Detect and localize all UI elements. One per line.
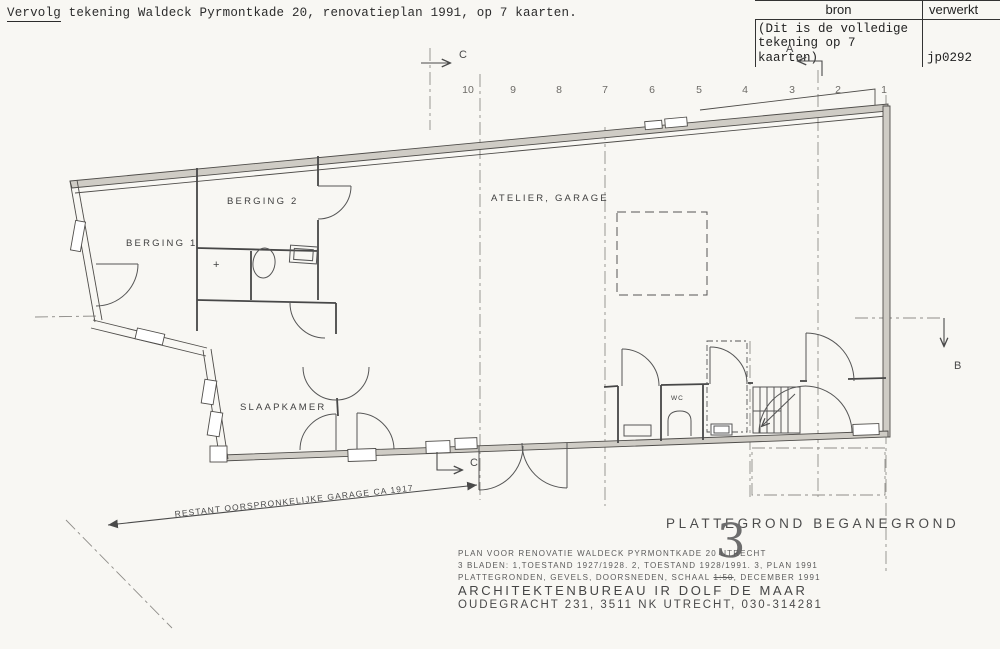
- sheet-title: PLATTEGROND BEGANEGROND: [666, 516, 959, 531]
- door-swing: [300, 414, 336, 450]
- window: [426, 441, 450, 454]
- door-swing: [805, 386, 852, 433]
- room-label-atelier: ATELIER, GARAGE: [491, 193, 609, 204]
- boundary-diagonal-line: [66, 520, 172, 628]
- door-swing: [806, 333, 854, 381]
- grid-label: 1: [881, 84, 887, 96]
- plus-mark: +: [213, 259, 219, 271]
- roof-edge-line: [700, 89, 875, 110]
- scanned-drawing-page: Vervolg tekening Waldeck Pyrmontkade 20,…: [0, 0, 1000, 649]
- staircase: [753, 387, 800, 433]
- room-label-berging2: BERGING 2: [227, 196, 299, 207]
- grid-label: 8: [556, 84, 562, 96]
- section-a-label: A: [786, 43, 794, 55]
- wall-slaapkamer-north: [197, 300, 336, 303]
- section-c-bottom-arrow: [437, 452, 462, 470]
- window: [201, 379, 217, 405]
- titleblock-line2: 3 BLADEN: 1,TOESTAND 1927/1928. 2, TOEST…: [458, 561, 818, 570]
- window: [455, 438, 477, 450]
- window: [853, 424, 879, 436]
- toilet-icon: [668, 411, 691, 436]
- door-swing: [357, 413, 394, 449]
- grid-label: 3: [789, 84, 795, 96]
- grid-label: 7: [602, 84, 608, 96]
- door-swing: [759, 386, 806, 433]
- duct-dashed-box: [707, 341, 747, 432]
- wall-left-outer: [70, 181, 95, 322]
- door-swing: [303, 367, 369, 400]
- grid-label: 2: [835, 84, 841, 96]
- grid-lines: [35, 48, 944, 628]
- titleblock-line1: PLAN VOOR RENOVATIE WALDECK PYRMONTKADE …: [458, 549, 767, 558]
- wall-wc-cluster: [604, 386, 618, 387]
- door-swing: [622, 349, 659, 386]
- window: [70, 220, 85, 251]
- room-label-wc: WC: [671, 395, 684, 402]
- wall-right: [883, 106, 890, 437]
- door-swing: [96, 264, 138, 306]
- grid-label: 5: [696, 84, 702, 96]
- grid-label: 9: [510, 84, 516, 96]
- grid-line: [35, 316, 100, 317]
- fixtures: [251, 212, 800, 436]
- titleblock-scale-struck: 1:50: [713, 573, 733, 582]
- corner-pier: [210, 446, 227, 462]
- section-c-top-label: C: [459, 49, 467, 61]
- wall-wc-cluster: [661, 384, 709, 385]
- shower-tray-icon: [624, 425, 651, 436]
- architect-address: OUDEGRACHT 231, 3511 NK UTRECHT, 030-314…: [458, 599, 823, 611]
- grid-label: 10: [462, 84, 474, 96]
- titleblock-line3: PLATTEGRONDEN, GEVELS, DOORSNEDEN, SCHAA…: [458, 573, 821, 582]
- room-label-berging1: BERGING 1: [126, 238, 198, 249]
- dimension-label: RESTANT OORSPRONKELIJKE GARAGE CA 1917: [174, 483, 414, 519]
- window: [348, 449, 376, 462]
- grid-label: 6: [649, 84, 655, 96]
- titleblock-line3-prefix: PLATTEGRONDEN, GEVELS, DOORSNEDEN, SCHAA…: [458, 573, 713, 582]
- grid-label: 4: [742, 84, 748, 96]
- grid-labels: 10 9 8 7 6 5 4 3 2 1: [462, 84, 887, 96]
- door-swing: [479, 446, 523, 490]
- wall-top: [70, 104, 888, 188]
- door-swing: [710, 347, 747, 384]
- sheet-number: 3: [715, 517, 747, 566]
- wall-slaapkamer-east-lower: [337, 398, 338, 416]
- section-b-label: B: [954, 360, 961, 372]
- window: [135, 328, 165, 345]
- architect-name: ARCHITEKTENBUREAU IR DOLF DE MAAR: [458, 583, 807, 598]
- window: [207, 411, 223, 437]
- section-c-bottom-label: C: [470, 457, 478, 469]
- wall-vent-detail: [645, 120, 663, 129]
- door-swing: [290, 303, 325, 338]
- wall-slaapkamer-left-outer: [203, 350, 220, 461]
- rooflight-dashed-square: [617, 212, 707, 295]
- wall-bottom: [222, 431, 888, 461]
- room-label-slaapkamer: SLAAPKAMER: [240, 402, 326, 413]
- dimension: RESTANT OORSPRONKELIJKE GARAGE CA 1917: [108, 483, 477, 525]
- door-swing: [318, 186, 351, 219]
- wall-vent-detail: [665, 117, 688, 128]
- terrace-dashed-outline: [752, 448, 885, 495]
- titleblock-line3-suffix: , DECEMBER 1991: [734, 573, 821, 582]
- toilet-icon: [251, 247, 276, 279]
